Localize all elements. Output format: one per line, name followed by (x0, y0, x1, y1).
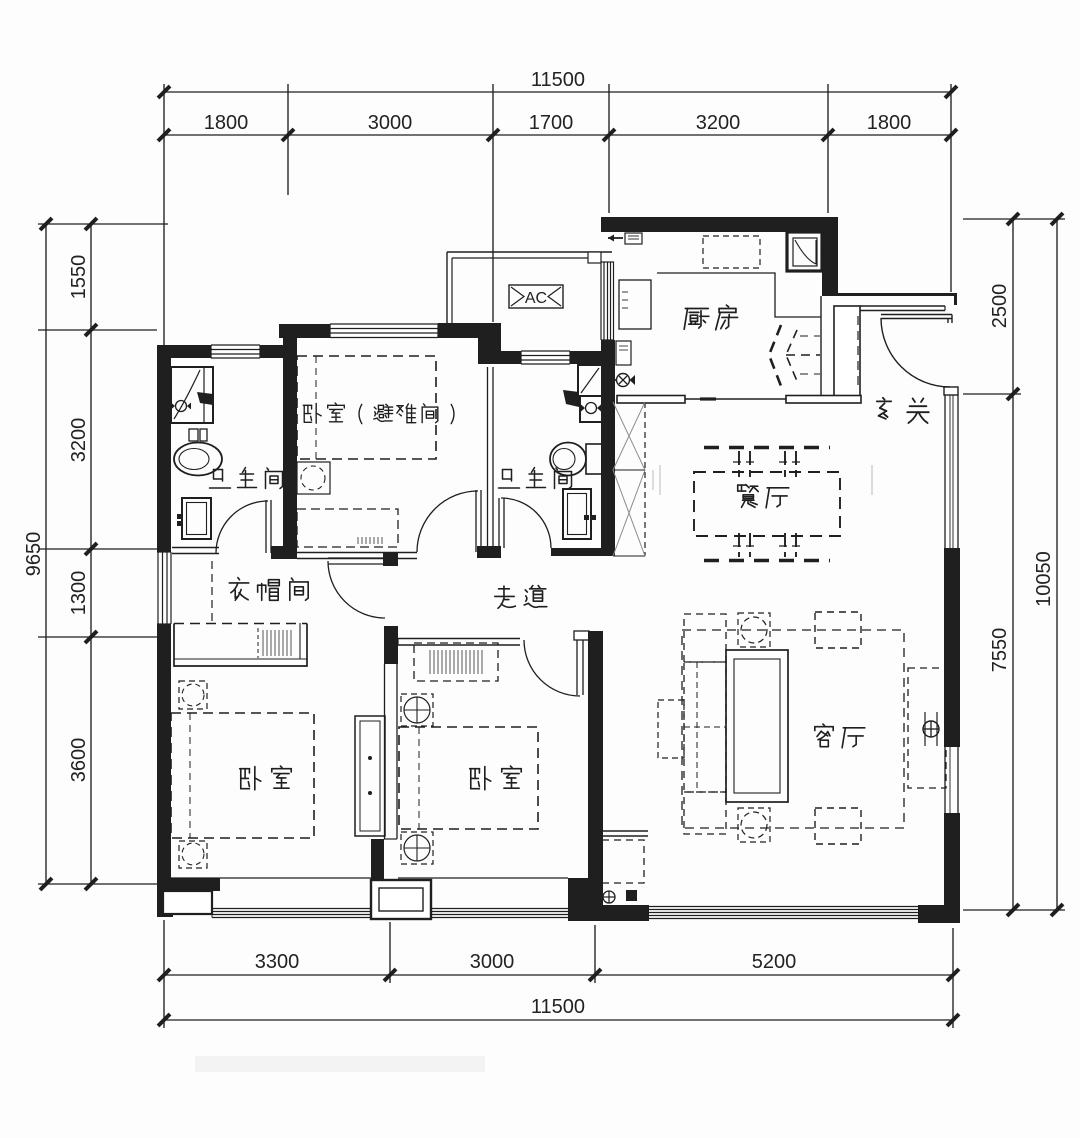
svg-text:3200: 3200 (696, 112, 741, 134)
svg-text:3300: 3300 (255, 951, 300, 973)
svg-text:7550: 7550 (989, 628, 1011, 673)
svg-text:3600: 3600 (68, 738, 90, 783)
svg-text:3000: 3000 (470, 951, 515, 973)
svg-text:11500: 11500 (531, 996, 585, 1018)
svg-text:5200: 5200 (752, 951, 797, 973)
svg-text:10050: 10050 (1033, 551, 1055, 607)
svg-text:1550: 1550 (68, 255, 90, 300)
svg-text:1700: 1700 (529, 112, 574, 134)
svg-text:1800: 1800 (867, 112, 912, 134)
svg-text:11500: 11500 (531, 69, 585, 91)
svg-text:3200: 3200 (68, 418, 90, 463)
svg-text:2500: 2500 (989, 284, 1011, 329)
svg-text:AC: AC (525, 290, 547, 307)
svg-text:1800: 1800 (204, 112, 249, 134)
svg-text:3000: 3000 (368, 112, 413, 134)
svg-text:9650: 9650 (23, 532, 45, 577)
svg-text:1300: 1300 (68, 571, 90, 616)
